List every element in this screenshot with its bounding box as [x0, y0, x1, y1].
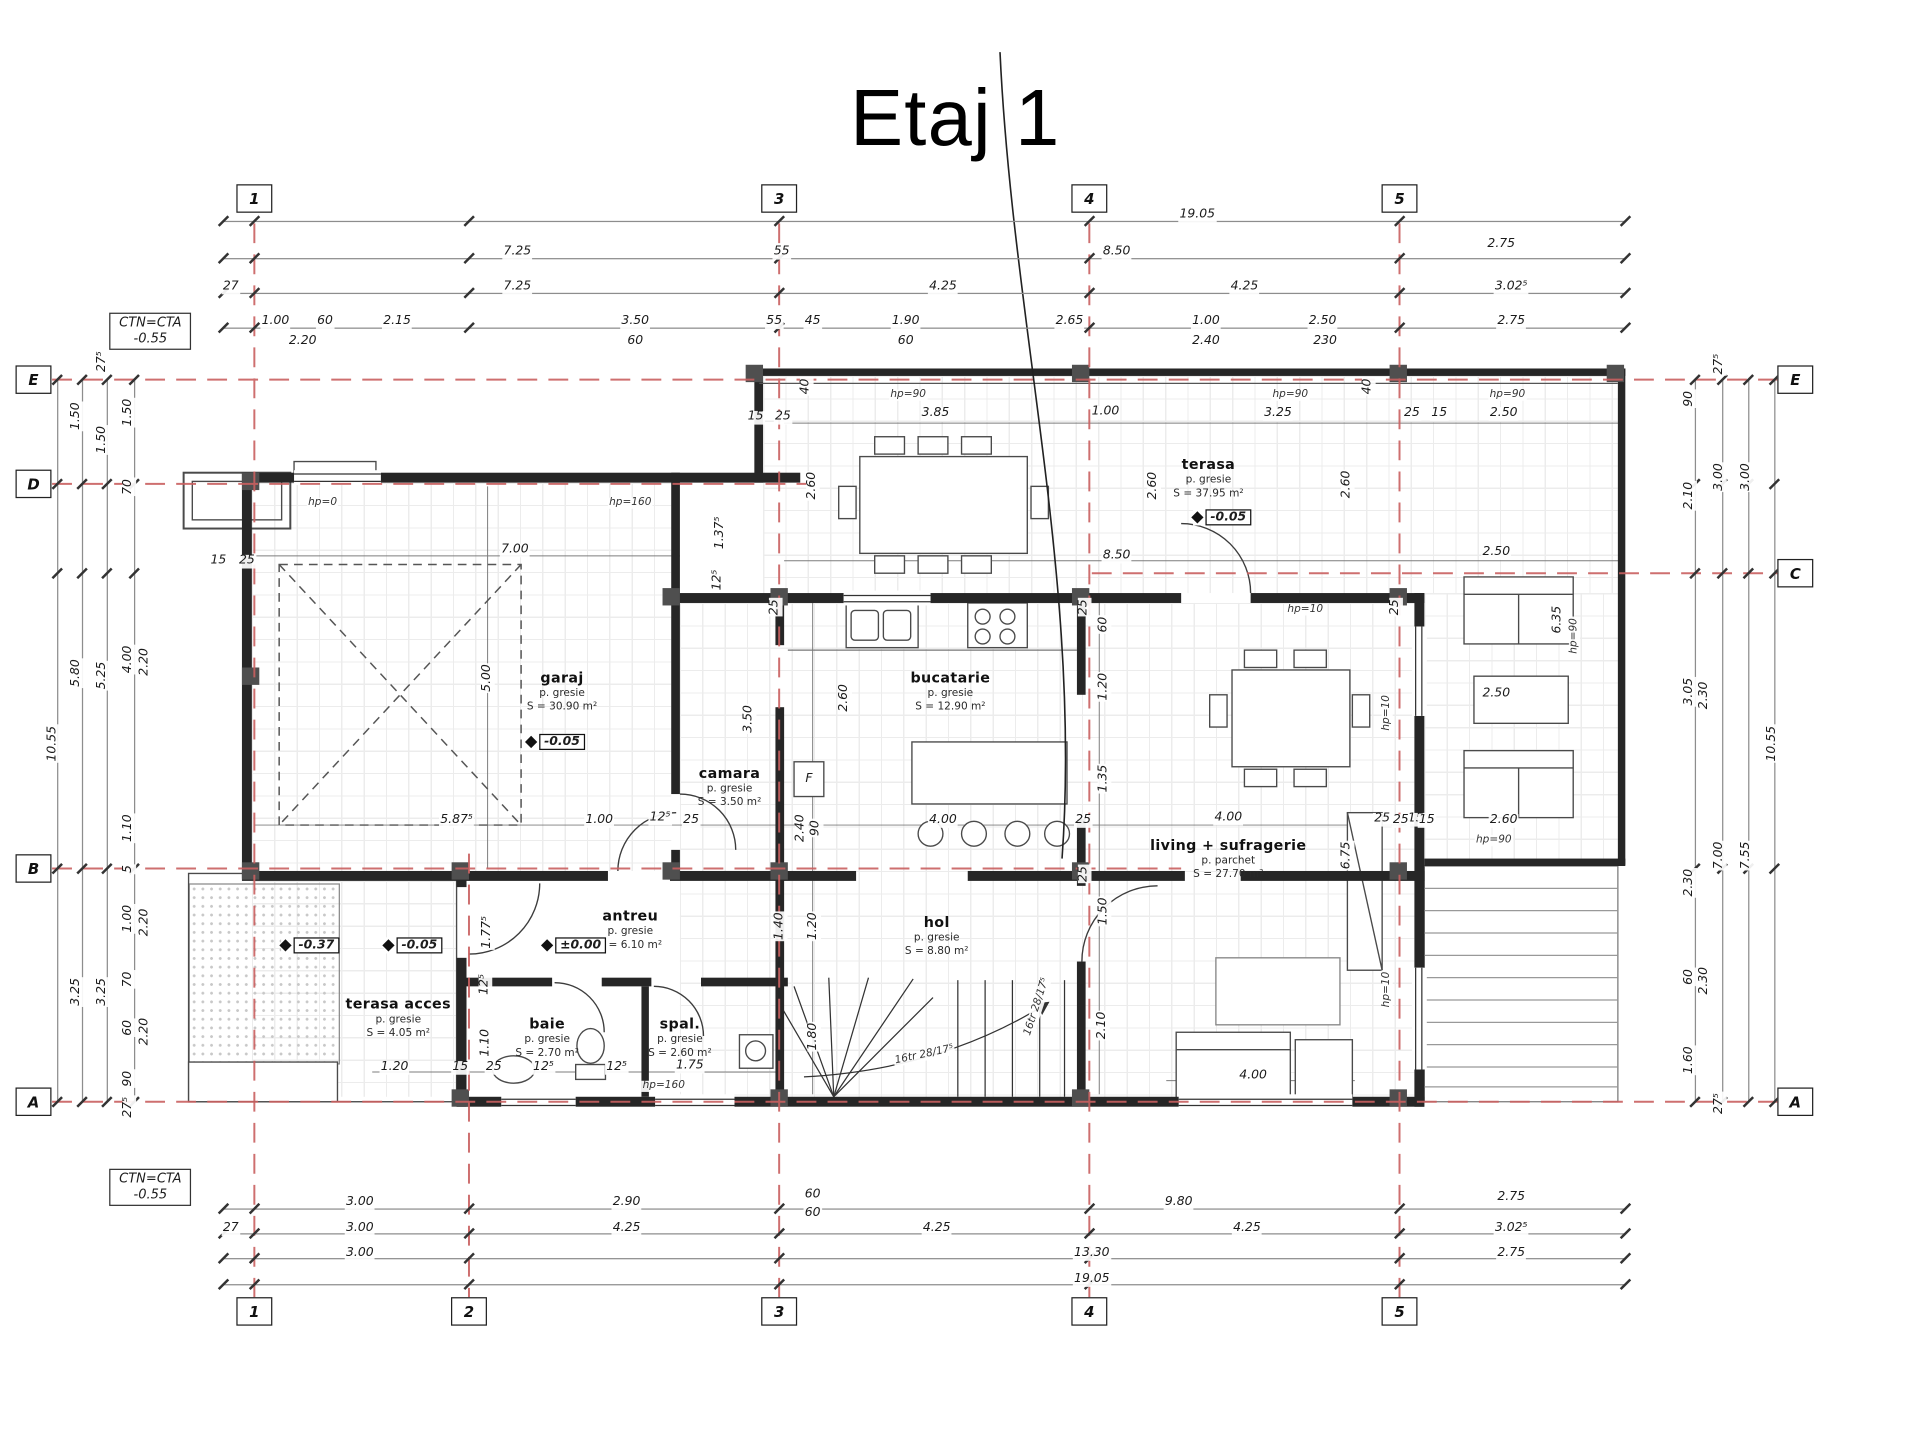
parapet-height-label: hp=90 [1475, 835, 1513, 846]
dim-label: 70 [123, 970, 136, 988]
grid-bubble: 2 [451, 1297, 487, 1326]
room-area: S = 30.90 m² [527, 701, 597, 713]
dim-label: 7.55 [1740, 840, 1753, 870]
dim-label: 27⁵ [123, 1096, 136, 1119]
room-area: S = 12.90 m² [910, 701, 990, 713]
room-label: terasap. gresieS = 37.95 m² [1173, 455, 1243, 500]
dim-label: 25 [238, 555, 256, 568]
grid-bubble: E [1777, 365, 1813, 394]
level-diamond-icon [1191, 511, 1203, 523]
dim-label: 2.75 [1486, 238, 1516, 251]
dim-label: 25 [485, 1061, 503, 1074]
dim-label: 1.10 [480, 1028, 493, 1058]
dim-label: 27⁵ [1713, 1092, 1726, 1115]
dim-label: 4.25 [928, 281, 958, 294]
dim-line [223, 1258, 1625, 1259]
dim-label: 7.25 [502, 246, 532, 259]
dim-label: 27 [222, 281, 240, 294]
level-value: -0.05 [539, 734, 585, 750]
dim-label: 3.25 [70, 977, 83, 1007]
dim-label: 2.10 [1683, 481, 1696, 511]
parapet-height-label: hp=10 [1382, 694, 1393, 732]
grid-bubble: 3 [761, 184, 797, 213]
dim-label: 27 [222, 1222, 240, 1235]
dim-label: 2.50 [1308, 315, 1338, 328]
dim-label: 60 [897, 335, 915, 348]
dim-label: 12⁵ [648, 812, 671, 825]
dim-label: 3.02⁵ [1494, 1222, 1529, 1235]
dim-label: 60 [1098, 616, 1111, 634]
dim-label: 5.25 [96, 660, 109, 690]
dim-label: 55 [765, 315, 783, 328]
dim-label: 15 [746, 411, 764, 424]
dim-label: 40 [1362, 377, 1375, 395]
level-marker: -0.37 [281, 937, 339, 953]
dim-label: 25 [1392, 814, 1410, 827]
level-note-bottom-line1: CTN=CTA [119, 1171, 182, 1186]
room-name: antreu [598, 907, 662, 924]
dim-label: 70 [123, 478, 136, 496]
room-name: bucatarie [910, 669, 990, 686]
dim-label: 2.10 [1096, 1010, 1109, 1040]
floor-plan-sheet: Etaj 1 CTN=CTA -0.55 CTN=CTA -0.55 [0, 0, 1920, 1430]
dim-label: 10.55 [1766, 725, 1779, 763]
dim-label: 8.50 [1102, 550, 1132, 563]
parapet-height-label: hp=160 [641, 1081, 686, 1092]
parapet-height-label: hp=90 [1488, 390, 1526, 401]
dim-label: 12⁵ [532, 1061, 555, 1074]
room-floor-finish: p. gresie [910, 687, 990, 699]
dim-label: 5 [123, 864, 136, 874]
dim-label: 4.00 [928, 814, 958, 827]
dim-label: 2.50 [1489, 407, 1519, 420]
dim-label: 12⁵ [712, 568, 725, 591]
dim-label: 2.50 [1481, 688, 1511, 701]
dim-label: 90 [810, 819, 823, 837]
dim-label: 4.25 [612, 1222, 642, 1235]
dim-label: 2.20 [139, 1017, 152, 1047]
dim-label: 60 [1683, 968, 1696, 986]
parapet-height-label: hp=0 [307, 498, 338, 509]
dim-label: 19.05 [1178, 209, 1216, 222]
dim-label: 2.60 [838, 683, 851, 713]
room-name: baie [515, 1015, 579, 1032]
dim-label: 60 [123, 1019, 136, 1037]
dim-label: 7.00 [1713, 840, 1726, 870]
dim-label: 40 [800, 377, 813, 395]
dim-label: 25 [1373, 813, 1391, 826]
level-marker: -0.05 [1193, 509, 1251, 525]
room-name: garaj [527, 669, 597, 686]
dim-label: 8.50 [1102, 246, 1132, 259]
dim-label: 60 [316, 315, 334, 328]
dim-label: 6.35 [1552, 605, 1565, 635]
dim-label: 1.40 [774, 911, 787, 941]
dim-label: 3.05 [1683, 677, 1696, 707]
dim-label: 5.87⁵ [439, 814, 474, 827]
dim-label: 3.00 [345, 1247, 375, 1260]
room-label: spal.p. gresieS = 2.60 m² [648, 1015, 712, 1060]
dim-label: 2.60 [1489, 814, 1519, 827]
room-name: hol [905, 913, 969, 930]
room-label: garajp. gresieS = 30.90 m² [527, 669, 597, 714]
level-note-top: CTN=CTA -0.55 [109, 313, 191, 351]
dim-label: 2.40 [1191, 335, 1221, 348]
dim-label: 25 [1078, 865, 1091, 883]
dim-label: 60 [804, 1207, 822, 1220]
dim-label: 4.25 [1232, 1222, 1262, 1235]
grid-bubble: 4 [1071, 1297, 1107, 1326]
dim-label: 3.25 [96, 977, 109, 1007]
dim-label: 3.00 [345, 1196, 375, 1209]
dim-label: 3.02⁵ [1494, 281, 1529, 294]
dim-label: 7.00 [500, 544, 530, 557]
level-value: -0.05 [1205, 509, 1251, 525]
dim-label: 27⁵ [96, 350, 109, 373]
parapet-height-label: hp=10 [1286, 604, 1324, 615]
dim-label: 4.00 [1213, 812, 1243, 825]
dim-label: 2.60 [1341, 469, 1354, 499]
grid-bubble: 1 [236, 184, 272, 213]
dim-line [223, 221, 1625, 222]
level-note-bottom: CTN=CTA -0.55 [109, 1169, 191, 1207]
dim-label: 19.05 [1073, 1273, 1111, 1286]
dim-label: 4.25 [922, 1222, 952, 1235]
parapet-height-label: hp=10 [1382, 970, 1393, 1008]
dim-label: 1.35 [1098, 763, 1111, 793]
dim-label: 1.50 [1098, 896, 1111, 926]
dim-label: 1.50 [70, 401, 83, 431]
dim-label: 15 [209, 555, 227, 568]
dim-label: 60 [804, 1189, 822, 1202]
room-label: baiep. gresieS = 2.70 m² [515, 1015, 579, 1060]
level-marker: -0.05 [527, 734, 585, 750]
dim-line [223, 1208, 1625, 1209]
room-label: terasa accesp. gresieS = 4.05 m² [346, 995, 451, 1040]
dim-label: 5.80 [70, 658, 83, 688]
dim-label: 1.50 [123, 397, 136, 427]
room-name: camara [698, 764, 762, 781]
stair-note-label: 16tr 28/17⁵ [1022, 976, 1052, 1039]
room-label: living + sufrageriep. parchetS = 27.70 m… [1150, 836, 1306, 881]
room-area: S = 37.95 m² [1173, 488, 1243, 500]
level-diamond-icon [382, 939, 394, 951]
dim-label: 4.00 [123, 644, 136, 674]
dim-label: 2.30 [1683, 868, 1696, 898]
dim-label: 3.00 [1713, 462, 1726, 492]
dim-label: 6.75 [1341, 840, 1354, 870]
dim-label: 3.00 [345, 1222, 375, 1235]
dim-line [223, 258, 1625, 259]
dim-label: 1.20 [807, 911, 820, 941]
room-name: terasa acces [346, 995, 451, 1012]
dim-label: 1.90 [891, 315, 921, 328]
dim-label: 45 [804, 315, 822, 328]
dim-label: 12⁵ [479, 973, 492, 996]
grid-bubble: 1 [236, 1297, 272, 1326]
dim-label: 2.60 [1147, 471, 1160, 501]
room-label: holp. gresieS = 8.80 m² [905, 913, 969, 958]
dim-label: 2.20 [139, 647, 152, 677]
level-note-top-line2: -0.55 [133, 331, 167, 346]
dim-label: 1.60 [1683, 1045, 1696, 1075]
dim-label: 25 [1074, 814, 1092, 827]
grid-bubble: 3 [761, 1297, 797, 1326]
dim-label: 25 [769, 598, 782, 616]
room-label: bucatariep. gresieS = 12.90 m² [910, 669, 990, 714]
level-diamond-icon [541, 939, 553, 951]
room-area: S = 8.80 m² [905, 945, 969, 957]
dim-label: 12⁵ [605, 1061, 628, 1074]
dim-label: 3.85 [920, 407, 950, 420]
dim-label: 1.80 [807, 1022, 820, 1052]
dim-label: 2.65 [1054, 315, 1084, 328]
level-note-top-line1: CTN=CTA [119, 315, 182, 330]
dim-label: 4.25 [1229, 281, 1259, 294]
dim-label: 3.50 [743, 704, 756, 734]
dim-label: 15 [1418, 814, 1436, 827]
dim-label: 25 [774, 411, 792, 424]
dim-label: 15 [1430, 407, 1448, 420]
room-name: terasa [1173, 455, 1243, 472]
dim-label: 1.75 [675, 1060, 705, 1073]
dim-label: 9.80 [1164, 1196, 1194, 1209]
dim-line [223, 328, 1625, 329]
grid-bubble: 5 [1382, 1297, 1418, 1326]
room-label: camarap. gresieS = 3.50 m² [698, 764, 762, 809]
dim-label: 27⁵ [1713, 352, 1726, 375]
room-floor-finish: p. gresie [346, 1014, 451, 1026]
parapet-height-label: hp=90 [1569, 617, 1580, 655]
dim-label: 1.00 [123, 904, 136, 934]
annotation-layer: 19.057.25558.502.75277.254.254.253.02⁵1.… [0, 0, 1920, 1430]
room-floor-finish: p. parchet [1150, 855, 1306, 867]
dim-label: 2.15 [382, 315, 412, 328]
dim-label: 2.50 [1481, 546, 1511, 559]
dim-label: 25 [1389, 598, 1402, 616]
level-diamond-icon [279, 939, 291, 951]
room-floor-finish: p. gresie [698, 783, 762, 795]
dim-label: 1.20 [379, 1061, 409, 1074]
dim-label: 13.30 [1073, 1247, 1111, 1260]
parapet-height-label: hp=160 [608, 498, 653, 509]
dim-label: 2.75 [1496, 1191, 1526, 1204]
room-name: spal. [648, 1015, 712, 1032]
stair-note-label: 16tr 28/17⁵ [893, 1043, 956, 1067]
dim-label: 1.37⁵ [714, 515, 727, 550]
room-area: S = 2.60 m² [648, 1047, 712, 1059]
room-floor-finish: p. gresie [1173, 474, 1243, 486]
level-value: -0.05 [397, 937, 443, 953]
dim-label: 1.00 [584, 814, 614, 827]
dim-label: 1.50 [96, 425, 109, 455]
grid-bubble: C [1777, 559, 1813, 588]
dim-label: 1.77⁵ [481, 915, 494, 950]
room-area: S = 27.70 m² [1150, 868, 1306, 880]
dim-label: 2.30 [1698, 680, 1711, 710]
dim-label: 1.00 [1191, 315, 1221, 328]
grid-bubble: D [16, 470, 52, 499]
room-area: S = 3.50 m² [698, 797, 762, 809]
room-area: S = 6.10 m² [598, 939, 662, 951]
dim-label: 3.50 [620, 315, 650, 328]
room-floor-finish: p. gresie [905, 932, 969, 944]
dim-label: 15 [451, 1061, 469, 1074]
room-area: S = 2.70 m² [515, 1047, 579, 1059]
parapet-height-label: hp=90 [889, 390, 927, 401]
grid-bubble: 4 [1071, 184, 1107, 213]
level-diamond-icon [525, 736, 537, 748]
level-marker: -0.05 [384, 937, 442, 953]
level-value: -0.37 [294, 937, 340, 953]
grid-bubble: A [1777, 1087, 1813, 1116]
dim-label: 25 [1403, 407, 1421, 420]
grid-bubble: E [16, 365, 52, 394]
room-label: antreup. gresieS = 6.10 m² [598, 907, 662, 952]
room-floor-finish: p. gresie [527, 687, 597, 699]
dim-label: 2.40 [795, 813, 808, 843]
room-floor-finish: p. gresie [598, 926, 662, 938]
grid-bubble: 5 [1382, 184, 1418, 213]
room-floor-finish: p. gresie [515, 1034, 579, 1046]
dim-line [223, 293, 1625, 294]
dim-label: 55 [773, 246, 791, 259]
dim-label: 90 [123, 1070, 136, 1088]
dim-label: 25 [1078, 598, 1091, 616]
room-name: living + sufragerie [1150, 836, 1306, 853]
parapet-height-label: hp=90 [1271, 390, 1309, 401]
dim-label: 2.90 [612, 1196, 642, 1209]
dim-label: 2.75 [1496, 315, 1526, 328]
dim-label: 3.25 [1263, 407, 1293, 420]
level-marker: ±0.00 [543, 937, 606, 953]
level-note-bottom-line2: -0.55 [133, 1188, 167, 1203]
dim-label: 90 [1683, 390, 1696, 408]
room-floor-finish: p. gresie [648, 1034, 712, 1046]
dim-label: 1.10 [123, 813, 136, 843]
dim-label: 4.00 [1238, 1070, 1268, 1083]
dim-line [223, 1284, 1625, 1285]
dim-label: 2.20 [139, 907, 152, 937]
dim-label: 7.25 [502, 281, 532, 294]
level-value: ±0.00 [555, 937, 606, 953]
dim-label: 3.00 [1740, 462, 1753, 492]
dim-label: 2.30 [1698, 966, 1711, 996]
dim-label: 230 [1312, 335, 1338, 348]
dim-label: 2.60 [806, 471, 819, 501]
dim-label: 1.20 [1098, 672, 1111, 702]
room-area: S = 4.05 m² [346, 1027, 451, 1039]
dim-label: 10.55 [47, 725, 60, 763]
dim-label: 60 [626, 335, 644, 348]
dim-label: 1.00 [1090, 406, 1120, 419]
grid-bubble: A [16, 1087, 52, 1116]
dim-label: 2.20 [288, 335, 318, 348]
grid-bubble: B [16, 854, 52, 883]
dim-label: 1.00 [260, 315, 290, 328]
dim-label: 5.00 [481, 663, 494, 693]
dim-label: 25 [682, 814, 700, 827]
dim-label: 2.75 [1496, 1247, 1526, 1260]
dim-label: F [804, 773, 814, 786]
